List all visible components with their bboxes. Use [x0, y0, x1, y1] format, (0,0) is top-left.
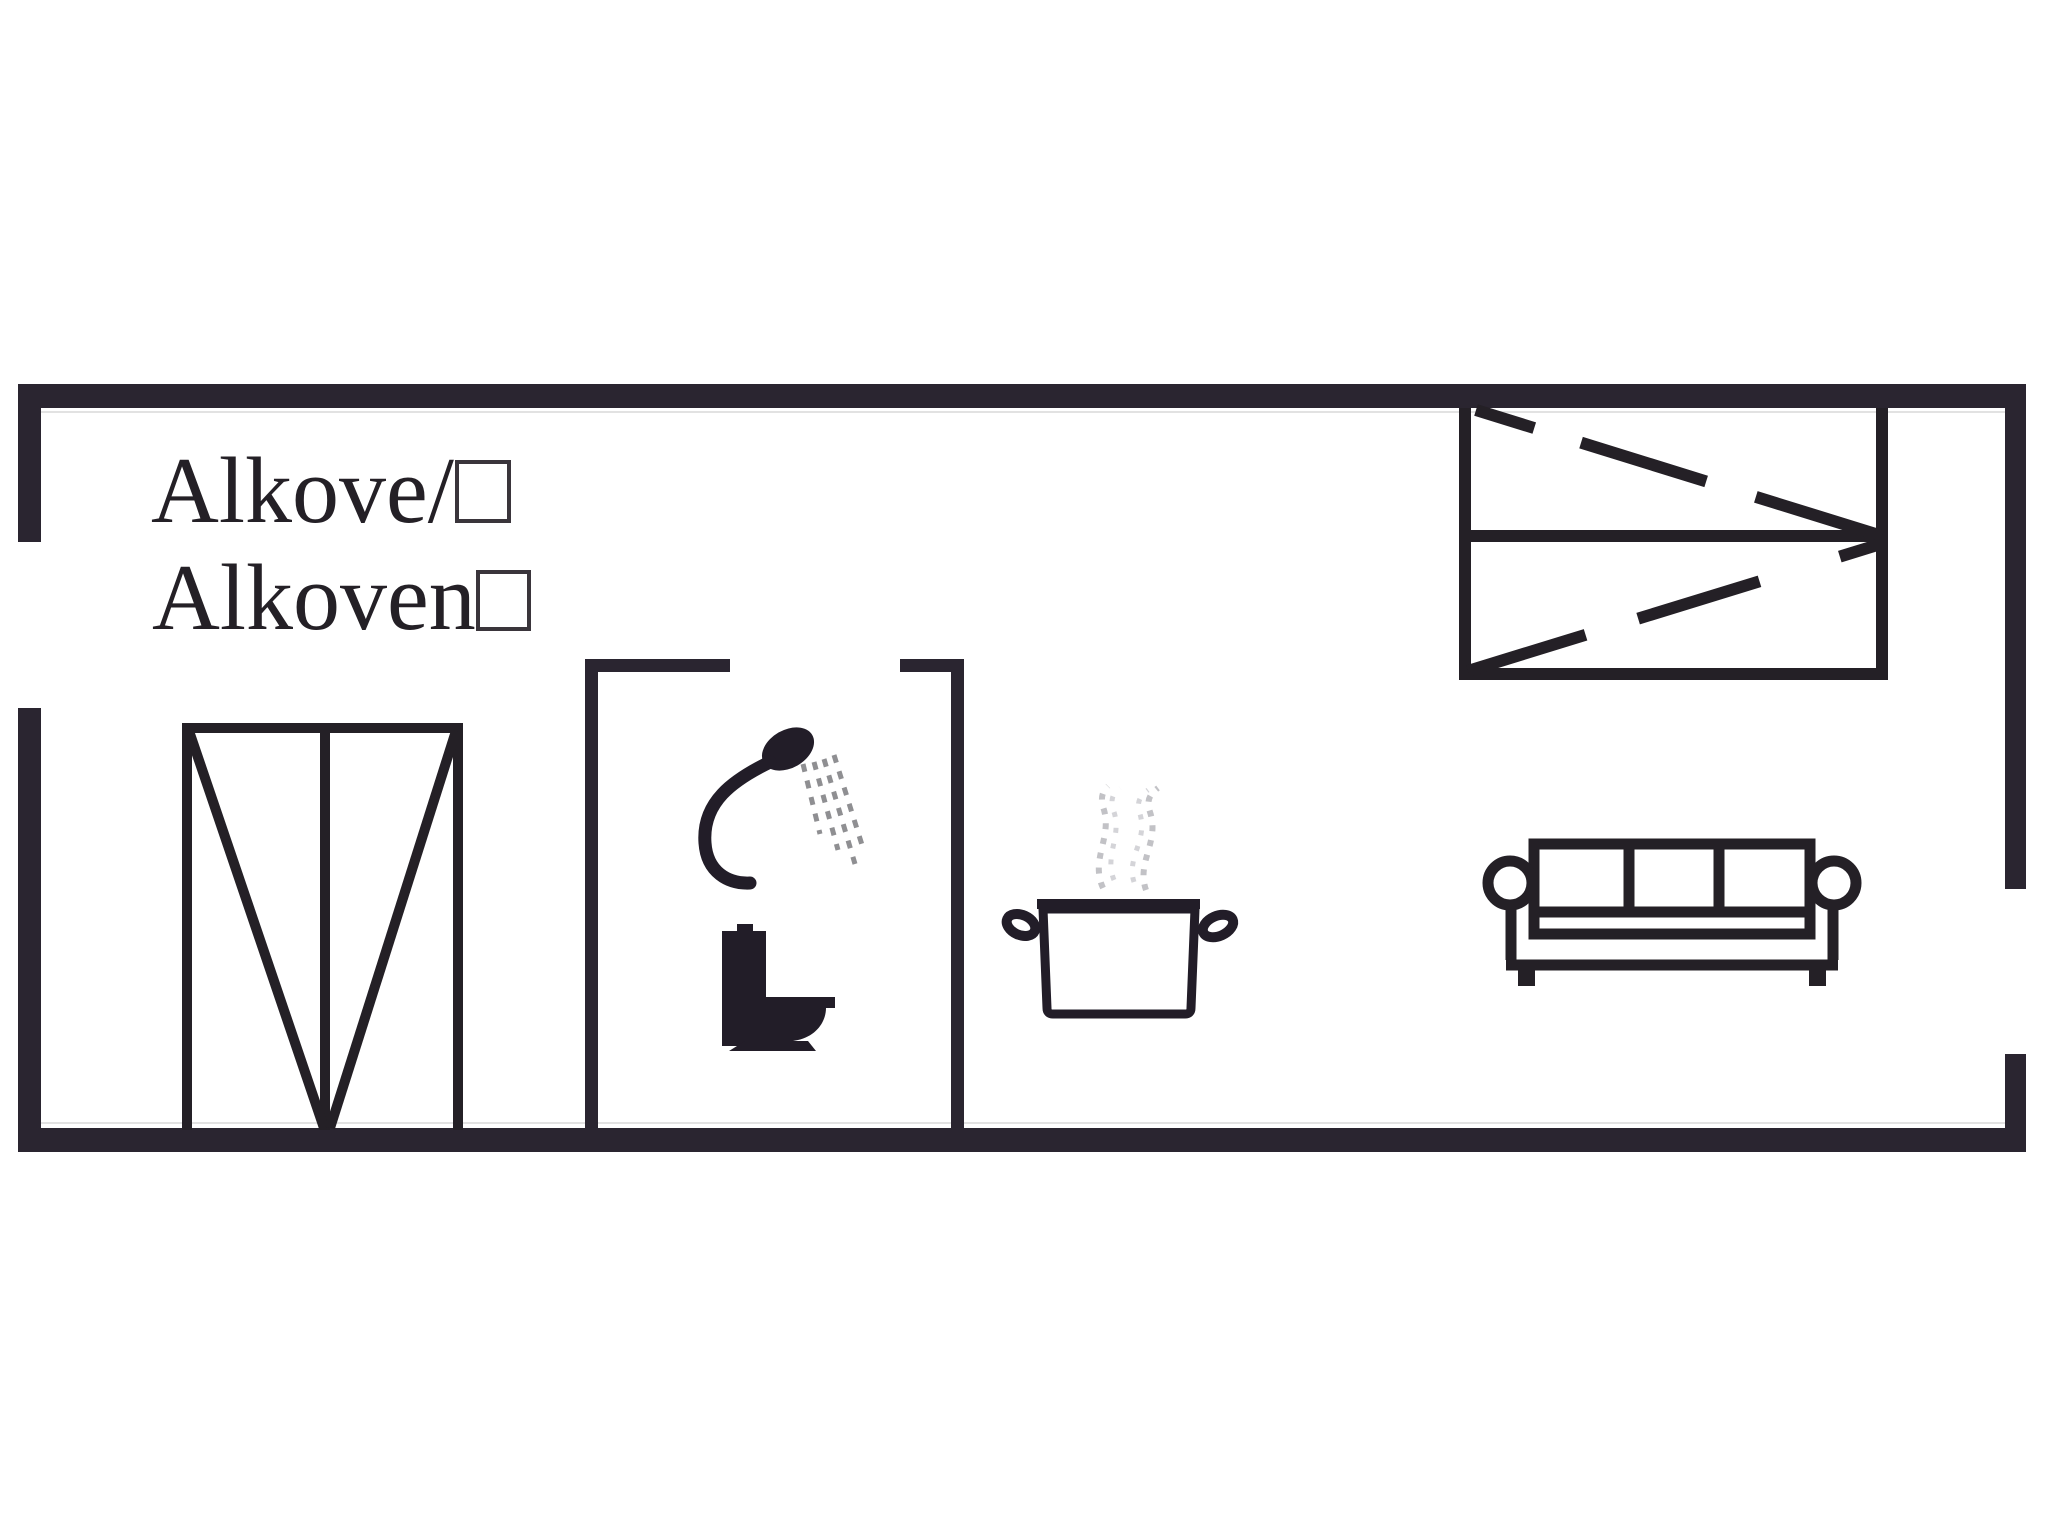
svg-text:Alkoven: Alkoven: [152, 546, 476, 650]
svg-text:Alkove/: Alkove/: [151, 439, 455, 543]
